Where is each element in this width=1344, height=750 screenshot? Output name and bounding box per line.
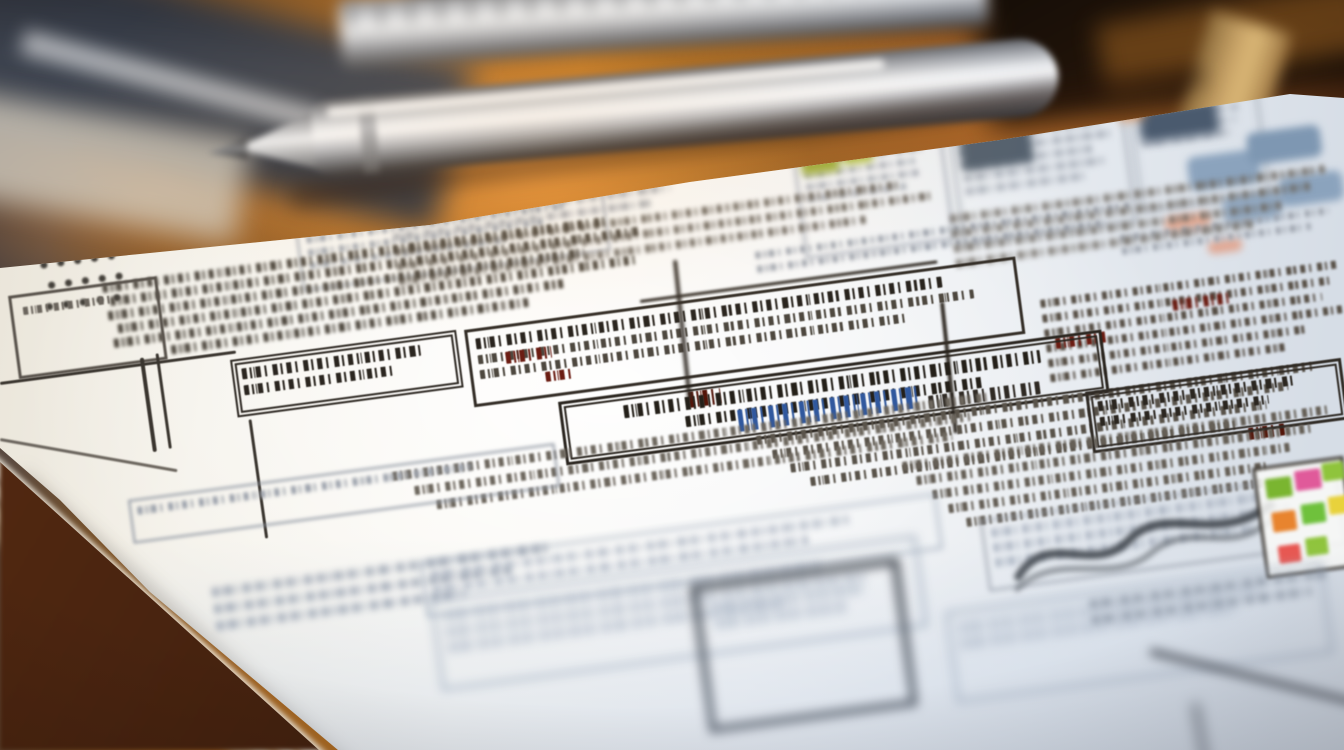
dot — [81, 277, 89, 285]
pen-tip — [207, 139, 249, 162]
legend-color-square — [1265, 476, 1293, 499]
legend-color-square — [1271, 510, 1297, 533]
dot — [65, 279, 73, 287]
legend-color-square — [1328, 495, 1344, 515]
scribble-text-row — [23, 295, 113, 315]
legend-color-square — [1300, 502, 1326, 525]
legend-color-square — [1321, 461, 1344, 482]
photo-canvas — [0, 0, 1344, 750]
scribble-text-row — [243, 366, 393, 396]
dot — [48, 281, 56, 289]
legend-color-square — [1294, 468, 1322, 491]
